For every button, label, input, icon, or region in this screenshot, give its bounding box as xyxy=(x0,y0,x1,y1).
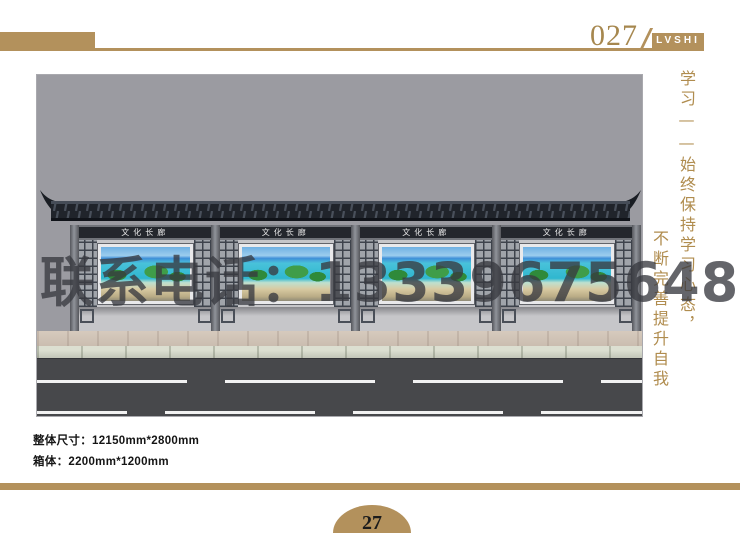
bay-title: 文化长廊 xyxy=(360,227,493,238)
dimension-specs: 整体尺寸：12150mm*2800mm 箱体：2200mm*1200mm xyxy=(33,431,199,473)
page-number-header: 027 xyxy=(566,21,638,51)
bay-title: 文化长廊 xyxy=(79,227,212,238)
roof-ridge xyxy=(51,201,630,204)
phone-watermark: 联系电话：13339675648 xyxy=(40,238,700,317)
page-number-footer: 27 xyxy=(362,512,382,533)
bay-title: 文化长廊 xyxy=(501,227,634,238)
bay-title: 文化长廊 xyxy=(220,227,353,238)
sidewalk xyxy=(37,331,643,346)
lane-dashed-line xyxy=(37,411,643,414)
footer-page-number-dome: 27 xyxy=(333,505,411,533)
footer-gold-rule xyxy=(0,483,740,490)
overall-size-spec: 整体尺寸：12150mm*2800mm xyxy=(33,431,199,452)
roof-edge xyxy=(51,218,630,221)
box-size-spec: 箱体：2200mm*1200mm xyxy=(33,452,199,473)
brand-tab: LVSHI xyxy=(652,33,704,49)
road xyxy=(37,358,643,417)
header-left-gold-bar xyxy=(0,32,95,48)
lane-dashed-line xyxy=(37,380,643,383)
chinese-roof xyxy=(39,189,642,225)
catalog-page: 027 LVSHI 文化长廊 xyxy=(0,0,740,533)
curb xyxy=(37,346,643,358)
